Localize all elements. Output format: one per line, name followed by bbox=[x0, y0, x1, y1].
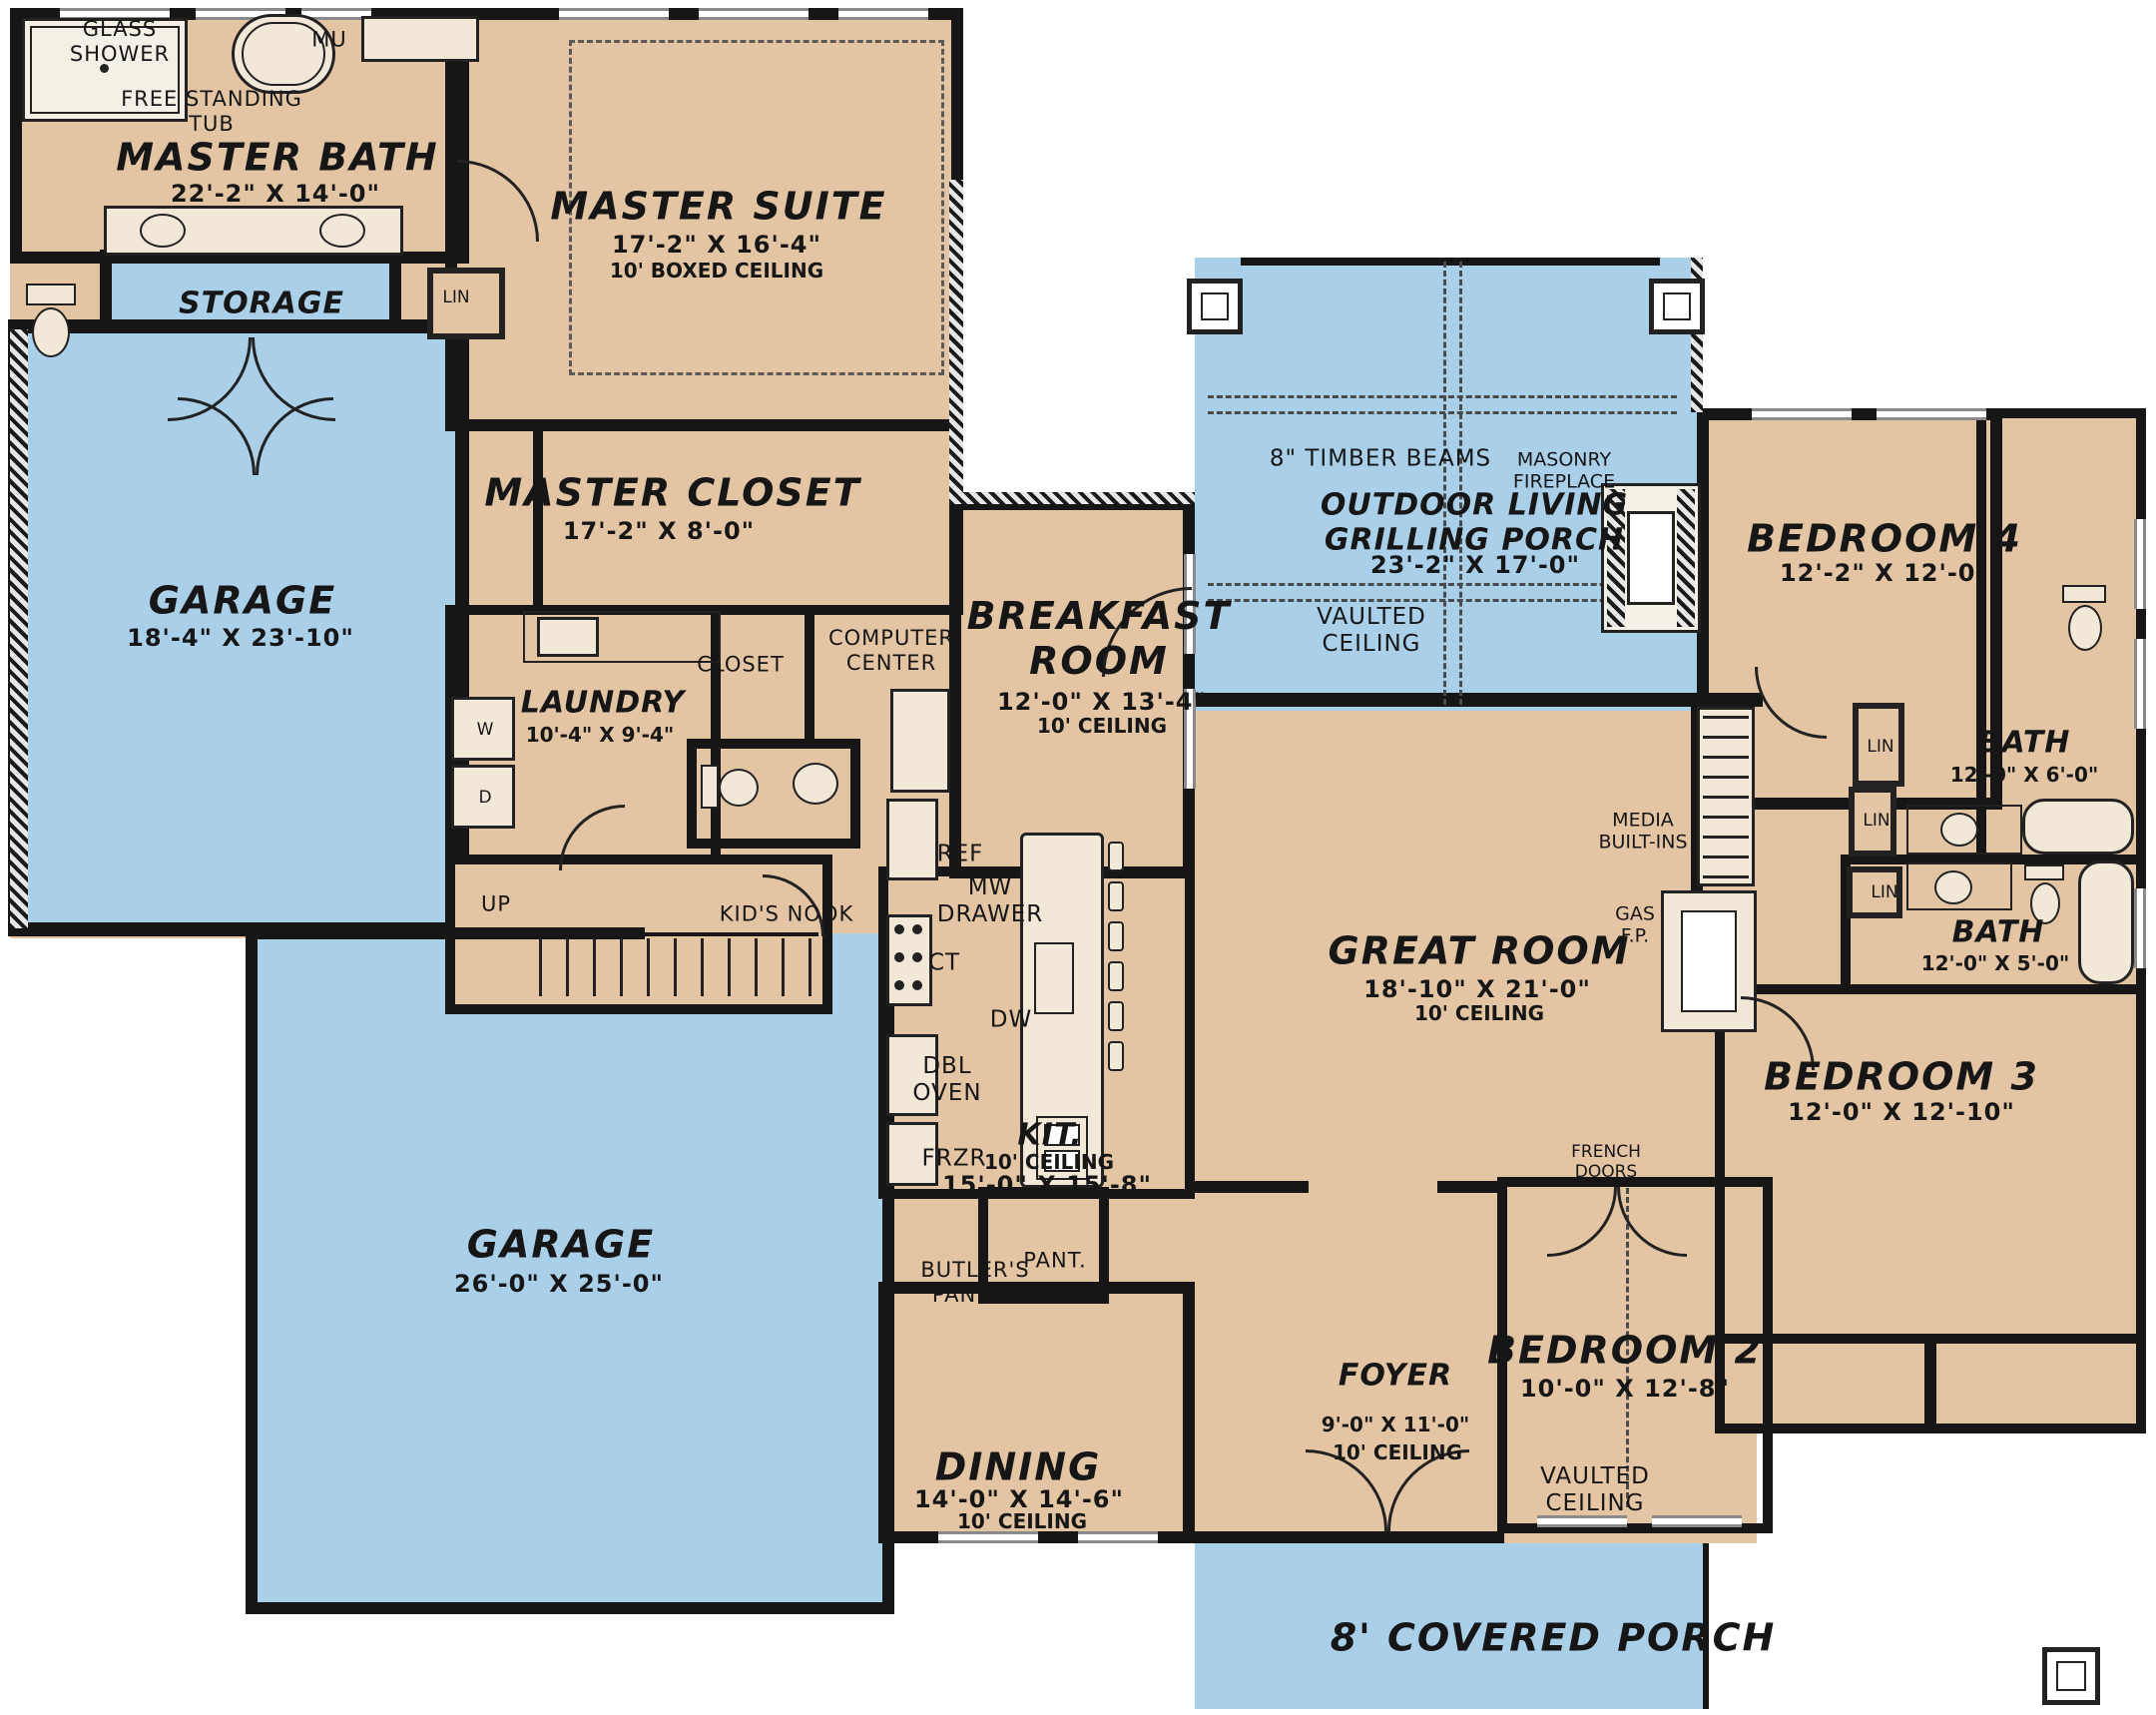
label-kit: KIT. bbox=[1017, 1117, 1082, 1152]
room-garage-2 bbox=[252, 1006, 888, 1612]
wall bbox=[246, 1602, 894, 1614]
toilet-tank bbox=[2062, 585, 2106, 603]
timber-beam-line bbox=[1443, 262, 1446, 705]
label-computer-center: COMPUTERCENTER bbox=[828, 626, 954, 676]
wall bbox=[1241, 258, 1660, 266]
window bbox=[838, 8, 928, 20]
burner bbox=[894, 924, 904, 934]
label-dining-ceil: 10' CEILING bbox=[957, 1510, 1087, 1534]
sink bbox=[140, 214, 186, 248]
label-garage-1: GARAGE bbox=[149, 579, 336, 624]
window bbox=[699, 8, 808, 20]
label-master-bath: MASTER BATH bbox=[116, 136, 438, 181]
label-d-letter: D bbox=[478, 788, 491, 808]
wall bbox=[1195, 1531, 1504, 1543]
label-bedroom-3-dim: 12'-0" X 12'-10" bbox=[1788, 1098, 2015, 1126]
toilet-bowl bbox=[2068, 605, 2102, 651]
label-laundry: LAUNDRY bbox=[521, 685, 685, 720]
label-bath-1-dim: 12'-0" X 6'-0" bbox=[1950, 764, 2099, 788]
label-ref: REF bbox=[937, 841, 984, 867]
window bbox=[2134, 519, 2146, 609]
label-glass-shower: GLASSSHOWER bbox=[70, 17, 170, 67]
wall bbox=[1189, 1181, 1309, 1193]
label-storage: STORAGE bbox=[179, 286, 344, 320]
toilet-tank bbox=[2024, 864, 2064, 880]
bar-chair bbox=[1108, 961, 1124, 991]
label-breakfast: BREAKFASTROOM bbox=[967, 594, 1232, 684]
burner bbox=[912, 924, 922, 934]
label-garage-1-dim: 18'-4" X 23'-10" bbox=[127, 624, 354, 652]
sink bbox=[793, 763, 838, 805]
porch-column-inner bbox=[1201, 292, 1229, 320]
label-great-room-dim: 18'-10" X 21'-0" bbox=[1363, 975, 1591, 1003]
timber-beam-line bbox=[1208, 395, 1677, 398]
label-dining: DINING bbox=[935, 1445, 1102, 1490]
burner bbox=[894, 952, 904, 962]
label-kids-nook: KID'S NOOK bbox=[720, 902, 853, 927]
window bbox=[1752, 408, 1852, 420]
bar-chair bbox=[1108, 1001, 1124, 1031]
label-lin-a: LIN bbox=[442, 287, 469, 307]
label-garage-2: GARAGE bbox=[467, 1223, 655, 1268]
hatched-wall bbox=[10, 329, 28, 928]
corner-column-inner bbox=[2056, 1661, 2086, 1691]
label-bath-2-dim: 12'-0" X 5'-0" bbox=[1921, 952, 2070, 976]
window bbox=[1877, 408, 1986, 420]
wall bbox=[882, 927, 894, 1614]
label-outdoor-living: OUTDOOR LIVINGGRILLING PORCH bbox=[1321, 488, 1628, 559]
laundry-sink bbox=[537, 617, 599, 657]
label-lin-c: LIN bbox=[1863, 811, 1889, 831]
label-breakfast-dim: 12'-0" X 13'-4" bbox=[997, 688, 1207, 716]
window bbox=[1078, 1531, 1158, 1543]
label-bedroom-2-dim: 10'-0" X 12'-8" bbox=[1520, 1375, 1730, 1403]
timber-beam-line bbox=[1459, 262, 1462, 705]
label-porch-vaulted: VAULTEDCEILING bbox=[1317, 604, 1426, 658]
sink bbox=[319, 214, 365, 248]
wall bbox=[246, 927, 258, 1614]
label-mw-drawer: MWDRAWER bbox=[937, 874, 1044, 928]
label-b2-vaulted: VAULTEDCEILING bbox=[1540, 1463, 1650, 1517]
label-master-closet-dim: 17'-2" X 8'-0" bbox=[563, 517, 755, 545]
toilet-tank bbox=[701, 765, 719, 809]
wall bbox=[1189, 693, 1763, 707]
floor-plan: GLASSSHOWERFREE STANDINGTUBMUMASTER BATH… bbox=[0, 0, 2156, 1715]
window bbox=[2134, 888, 2146, 968]
window bbox=[559, 8, 669, 20]
label-butlers-pantry: BUTLER'SPANTRY bbox=[920, 1258, 1029, 1308]
timber-beam-line bbox=[1208, 411, 1677, 414]
sink bbox=[1940, 813, 1978, 847]
label-bedroom-4: BEDROOM 4 bbox=[1747, 517, 2022, 562]
bar-chair bbox=[1108, 1041, 1124, 1071]
bar-chair bbox=[1108, 921, 1124, 951]
label-up: UP bbox=[481, 892, 511, 917]
label-bath-1: BATH bbox=[1978, 725, 2071, 760]
label-dbl-oven: DBLOVEN bbox=[912, 1053, 981, 1107]
label-garage-2-dim: 26'-0" X 25'-0" bbox=[454, 1270, 664, 1298]
toilet-bowl bbox=[719, 769, 759, 807]
hatched-wall bbox=[949, 180, 963, 504]
bar-chair bbox=[1108, 881, 1124, 911]
cooktop bbox=[886, 914, 932, 1006]
room-bath-1 bbox=[1976, 408, 2146, 864]
toilet-bowl bbox=[32, 307, 70, 357]
bathtub bbox=[2022, 799, 2134, 855]
hatched-wall bbox=[949, 492, 1195, 504]
label-ct: CT bbox=[928, 949, 960, 976]
makeup-vanity bbox=[361, 16, 479, 62]
label-master-suite-ceil: 10' BOXED CEILING bbox=[610, 260, 823, 284]
label-frzr: FRZR bbox=[922, 1145, 987, 1172]
label-covered-porch: 8' COVERED PORCH bbox=[1331, 1616, 1777, 1661]
label-bath-2: BATH bbox=[1952, 914, 2045, 949]
label-great-room-ceil: 10' CEILING bbox=[1414, 1002, 1544, 1026]
label-french-doors: FRENCHDOORS bbox=[1571, 1142, 1641, 1182]
label-outdoor-living-dim: 23'-2" X 17'-0" bbox=[1370, 551, 1580, 579]
burner bbox=[894, 980, 904, 990]
label-breakfast-ceil: 10' CEILING bbox=[1037, 715, 1167, 739]
label-kit-dim: 15'-0" X 15'-8" bbox=[942, 1171, 1152, 1199]
toilet-tank bbox=[26, 284, 76, 305]
sink bbox=[1934, 870, 1972, 904]
window bbox=[2134, 639, 2146, 729]
label-free-standing-tub: FREE STANDINGTUB bbox=[121, 87, 302, 137]
label-foyer: FOYER bbox=[1339, 1358, 1452, 1393]
window bbox=[1652, 1515, 1742, 1527]
label-great-room: GREAT ROOM bbox=[1328, 929, 1630, 974]
label-lin-b: LIN bbox=[1867, 737, 1893, 757]
label-bedroom-2: BEDROOM 2 bbox=[1487, 1329, 1763, 1374]
stairs bbox=[539, 938, 814, 996]
label-foyer-dim: 9'-0" X 11'-0" bbox=[1322, 1414, 1470, 1437]
burner bbox=[912, 980, 922, 990]
exterior-notch bbox=[949, 180, 1195, 504]
label-lin-d: LIN bbox=[1871, 882, 1897, 902]
island-range bbox=[1034, 942, 1074, 1014]
label-bedroom-3: BEDROOM 3 bbox=[1764, 1055, 2039, 1100]
label-master-suite: MASTER SUITE bbox=[550, 185, 886, 230]
masonry-fireplace-hatch bbox=[1677, 489, 1695, 627]
room-closet-r2 bbox=[1926, 1334, 2146, 1433]
bathtub bbox=[2078, 860, 2134, 984]
label-bedroom-4-dim: 12'-2" X 12'-0" bbox=[1780, 559, 1989, 587]
label-master-suite-dim: 17'-2" X 16'-4" bbox=[612, 231, 821, 259]
label-master-bath-dim: 22'-2" X 14'-0" bbox=[171, 180, 380, 208]
computer-desk bbox=[890, 689, 950, 793]
label-timber-beams: 8" TIMBER BEAMS bbox=[1270, 445, 1491, 472]
label-closet-hall: CLOSET bbox=[697, 653, 785, 678]
label-media-built-ins: MEDIABUILT-INS bbox=[1598, 810, 1687, 855]
bar-chair bbox=[1108, 842, 1124, 871]
wall bbox=[1437, 1181, 1507, 1193]
label-laundry-dim: 10'-4" X 9'-4" bbox=[526, 724, 675, 748]
label-pant: PANT. bbox=[1023, 1249, 1086, 1274]
label-w-letter: W bbox=[477, 720, 494, 740]
media-shelf-lines bbox=[1703, 715, 1749, 878]
label-foyer-ceil: 10' CEILING bbox=[1333, 1441, 1462, 1465]
refrigerator bbox=[886, 799, 938, 880]
label-dw: DW bbox=[990, 1006, 1032, 1033]
label-mu: MU bbox=[311, 28, 347, 53]
porch-column-inner bbox=[1663, 292, 1691, 320]
burner bbox=[912, 952, 922, 962]
label-master-closet: MASTER CLOSET bbox=[484, 471, 860, 516]
gas-firebox bbox=[1681, 910, 1737, 1012]
masonry-firebox bbox=[1627, 511, 1675, 605]
